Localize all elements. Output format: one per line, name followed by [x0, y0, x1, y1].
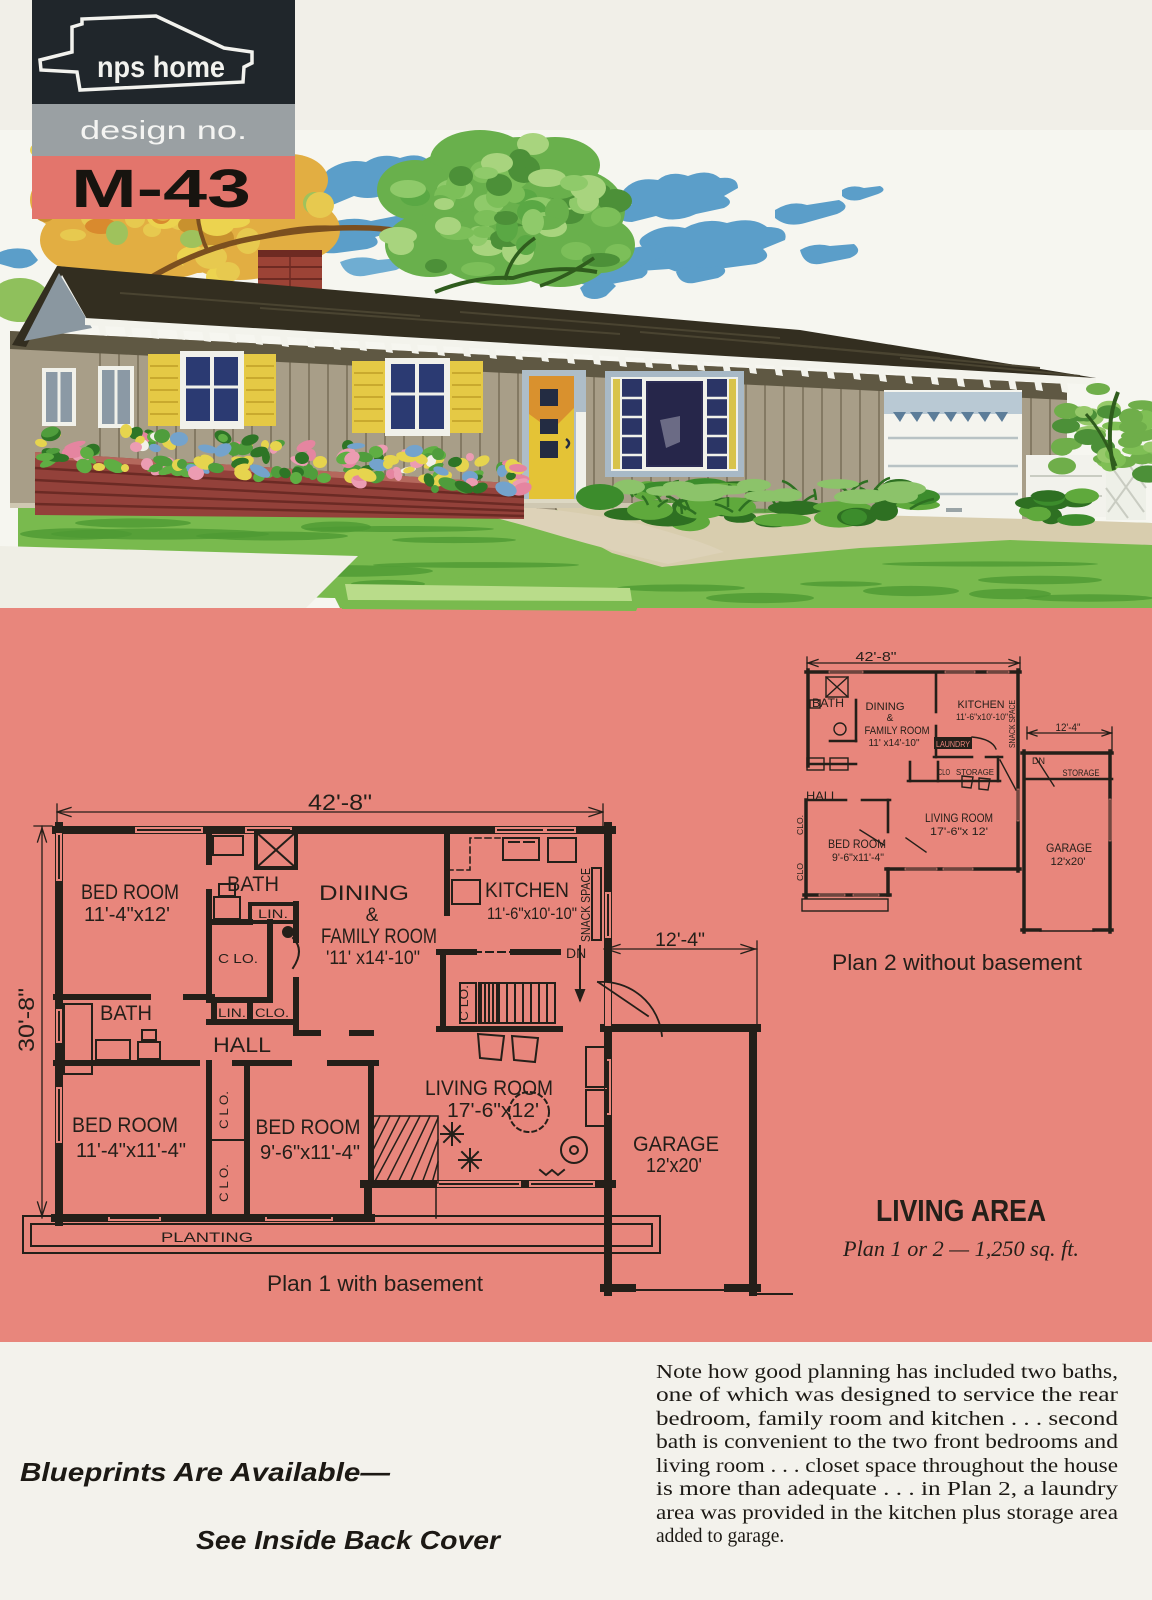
- svg-text:&: &: [366, 905, 379, 926]
- svg-text:KITCHEN: KITCHEN: [485, 879, 569, 902]
- svg-text:BED ROOM: BED ROOM: [81, 881, 179, 904]
- svg-text:HALL: HALL: [806, 789, 838, 803]
- svg-text:DN: DN: [566, 945, 586, 961]
- svg-text:Note how good planning has inc: Note how good planning has included two …: [656, 1362, 1118, 1383]
- svg-text:CLO: CLO: [796, 863, 805, 881]
- svg-text:CLO: CLO: [938, 768, 950, 777]
- svg-text:See Inside Back Cover: See Inside Back Cover: [196, 1525, 502, 1555]
- svg-text:9'-6"x11'-4": 9'-6"x11'-4": [832, 852, 884, 864]
- svg-text:SNACK SPACE: SNACK SPACE: [1008, 700, 1017, 748]
- svg-text:BED ROOM: BED ROOM: [72, 1114, 178, 1137]
- svg-text:BATH: BATH: [227, 873, 279, 896]
- svg-text:11'-4"x12': 11'-4"x12': [84, 904, 170, 926]
- svg-text:C LO.: C LO.: [218, 951, 258, 966]
- svg-text:SNACK SPACE: SNACK SPACE: [578, 868, 593, 942]
- svg-text:CLO.: CLO.: [255, 1006, 289, 1020]
- svg-text:9'-6"x11'-4": 9'-6"x11'-4": [260, 1142, 360, 1164]
- svg-text:LIN.: LIN.: [258, 907, 288, 921]
- svg-text:M-43: M-43: [71, 159, 251, 219]
- svg-text:11'-6"x10'-10": 11'-6"x10'-10": [487, 904, 577, 923]
- svg-text:LIVING ROOM: LIVING ROOM: [425, 1077, 553, 1100]
- svg-text:BATH: BATH: [812, 696, 844, 710]
- svg-text:C L O.: C L O.: [217, 1164, 231, 1202]
- svg-text:area was provided in the kitch: area was provided in the kitchen plus st…: [656, 1503, 1118, 1524]
- svg-text:one of which was designed to s: one of which was designed to service the…: [656, 1385, 1119, 1406]
- svg-text:HALL: HALL: [213, 1034, 271, 1057]
- svg-text:DN: DN: [1032, 756, 1045, 766]
- svg-text:12'x20': 12'x20': [1051, 856, 1086, 868]
- svg-text:bath is convenient to the two: bath is convenient to the two front bedr…: [656, 1432, 1118, 1453]
- svg-text:BED ROOM: BED ROOM: [256, 1116, 361, 1139]
- svg-text:C LO.: C LO.: [457, 985, 471, 1021]
- svg-text:17'-6"x 12': 17'-6"x 12': [930, 826, 988, 838]
- svg-text:Plan 1 or 2 — 1,250 sq. ft.: Plan 1 or 2 — 1,250 sq. ft.: [842, 1236, 1079, 1261]
- svg-text:12'-4": 12'-4": [655, 930, 705, 951]
- svg-text:bedroom, family room and kitch: bedroom, family room and kitchen . . . s…: [656, 1409, 1118, 1430]
- svg-text:C L O.: C L O.: [217, 1091, 231, 1129]
- svg-text:CLO.: CLO.: [796, 815, 805, 835]
- svg-text:BATH: BATH: [100, 1002, 152, 1025]
- svg-text:12'-4": 12'-4": [1056, 722, 1081, 734]
- svg-text:STORAGE: STORAGE: [1063, 768, 1100, 778]
- svg-text:GARAGE: GARAGE: [1046, 841, 1092, 855]
- svg-text:LIN.: LIN.: [218, 1006, 246, 1020]
- svg-text:DINING: DINING: [319, 882, 409, 905]
- svg-text:42'-8": 42'-8": [308, 790, 372, 815]
- svg-text:living room . . . closet space: living room . . . closet space throughou…: [656, 1456, 1118, 1477]
- svg-text:KITCHEN: KITCHEN: [958, 699, 1005, 711]
- svg-text:added to garage.: added to garage.: [656, 1526, 784, 1547]
- svg-text:11'-6"x10'-10": 11'-6"x10'-10": [956, 712, 1008, 722]
- svg-text:Plan 1 with basement: Plan 1 with basement: [267, 1271, 483, 1296]
- svg-text:BED ROOM: BED ROOM: [828, 837, 886, 851]
- svg-text:Blueprints Are Available—: Blueprints Are Available—: [20, 1457, 391, 1487]
- svg-text:design no.: design no.: [80, 115, 247, 145]
- svg-text:LAUNDRY: LAUNDRY: [936, 740, 971, 749]
- svg-text:11'-4"x11'-4": 11'-4"x11'-4": [76, 1140, 186, 1162]
- svg-text:LIVING AREA: LIVING AREA: [876, 1193, 1046, 1228]
- svg-text:11' x14'-10": 11' x14'-10": [869, 738, 920, 749]
- svg-text:STORAGE: STORAGE: [956, 768, 994, 777]
- svg-text:17'-6"x12': 17'-6"x12': [447, 1100, 539, 1122]
- svg-text:12'x20': 12'x20': [646, 1155, 702, 1177]
- svg-text:FAMILY ROOM: FAMILY ROOM: [321, 925, 437, 948]
- svg-text:30'-8": 30'-8": [14, 988, 39, 1052]
- svg-text:&: &: [887, 713, 894, 724]
- svg-text:Plan 2 without basement: Plan 2 without basement: [832, 950, 1082, 975]
- svg-text:PLANTING: PLANTING: [161, 1229, 253, 1245]
- svg-text:LIVING ROOM: LIVING ROOM: [925, 811, 993, 825]
- svg-text:42'-8": 42'-8": [856, 649, 897, 664]
- svg-text:'11' x14'-10": '11' x14'-10": [326, 948, 420, 969]
- svg-text:DINING: DINING: [866, 701, 905, 713]
- svg-text:GARAGE: GARAGE: [633, 1133, 719, 1156]
- svg-text:nps home: nps home: [97, 51, 225, 84]
- svg-text:is more than adequate . . . in: is more than adequate . . . in Plan 2, a…: [656, 1479, 1118, 1500]
- svg-text:FAMILY ROOM: FAMILY ROOM: [865, 725, 930, 737]
